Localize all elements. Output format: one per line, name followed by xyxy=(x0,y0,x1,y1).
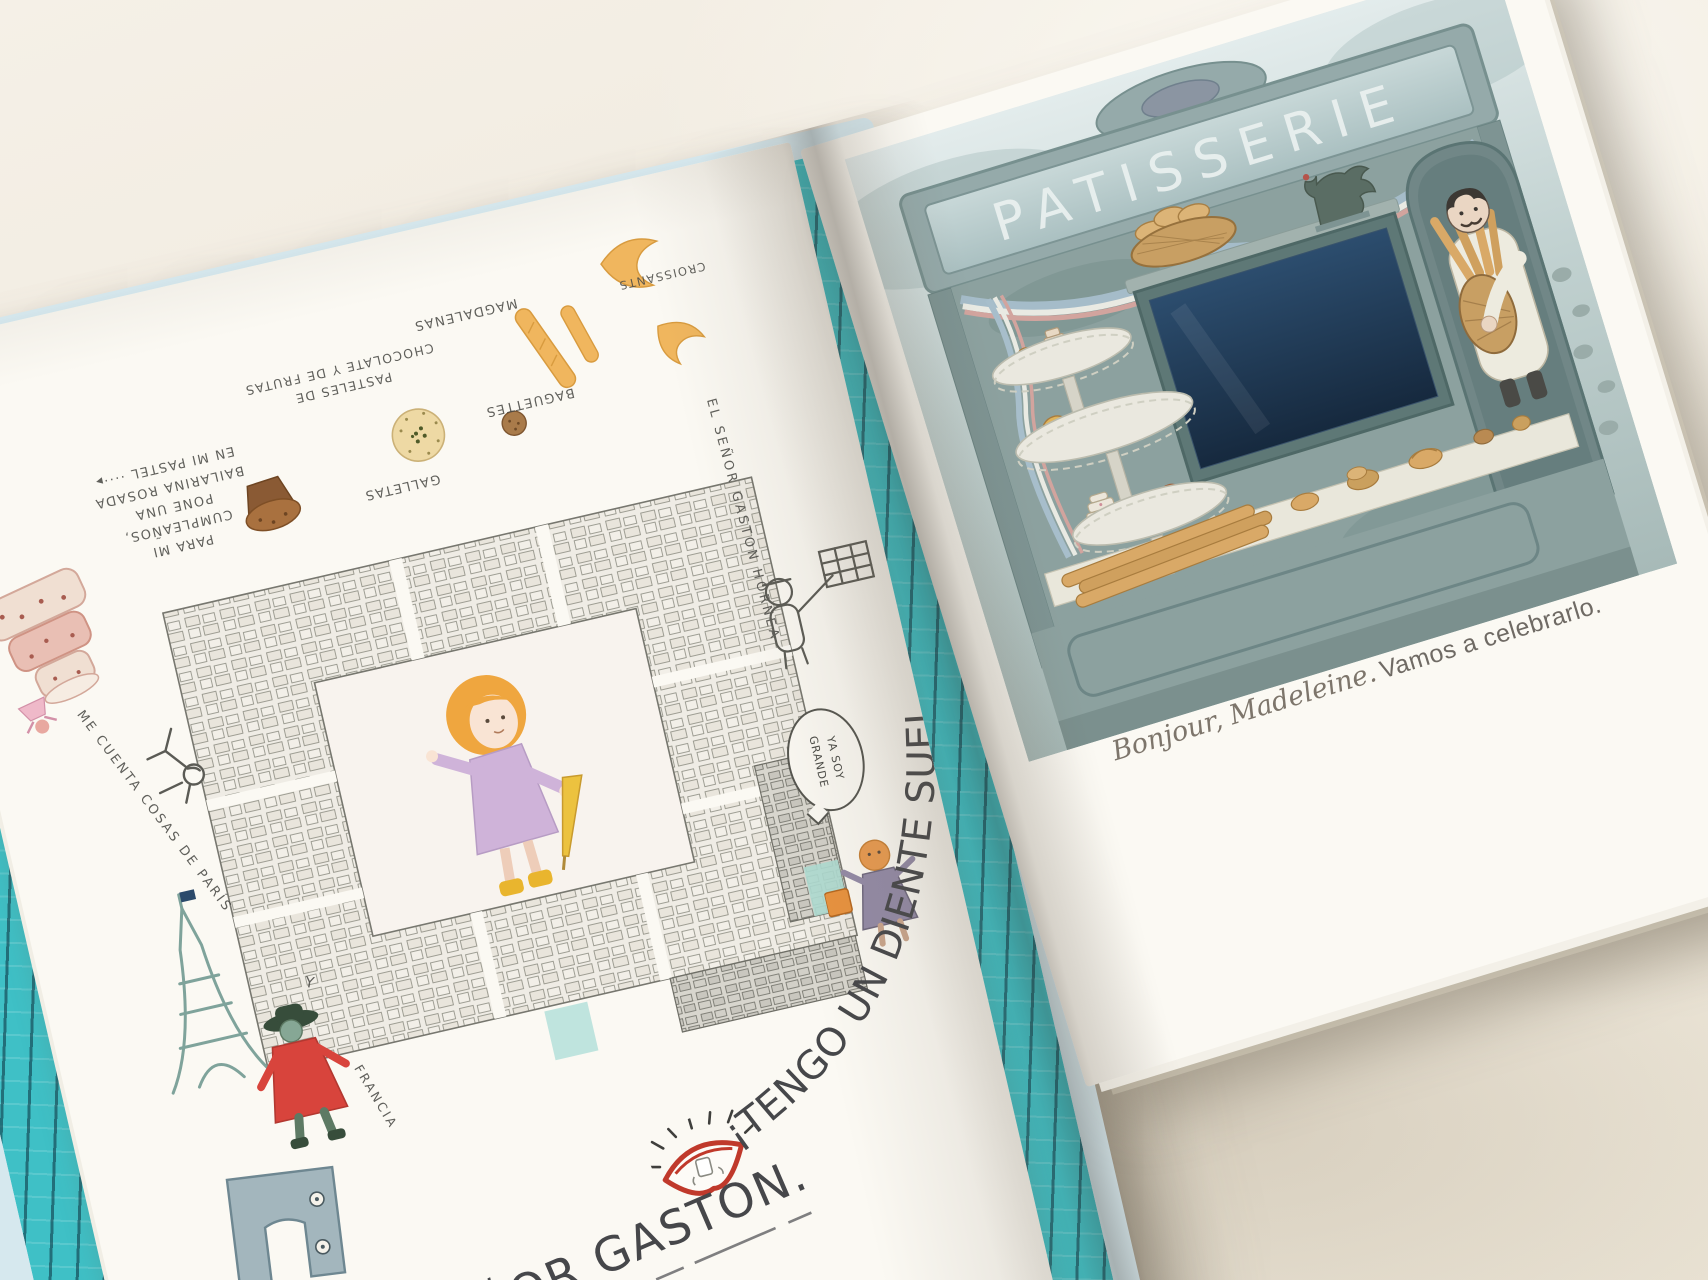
headline-hola: HOLA, SEÑOR GASTON. xyxy=(225,1144,839,1280)
patisserie-storefront-illustration: PATISSERIE xyxy=(845,0,1678,762)
photo-background: PARA MI CUMPLEAÑOS, PONE UNA BAILARINA R… xyxy=(0,0,1708,1280)
